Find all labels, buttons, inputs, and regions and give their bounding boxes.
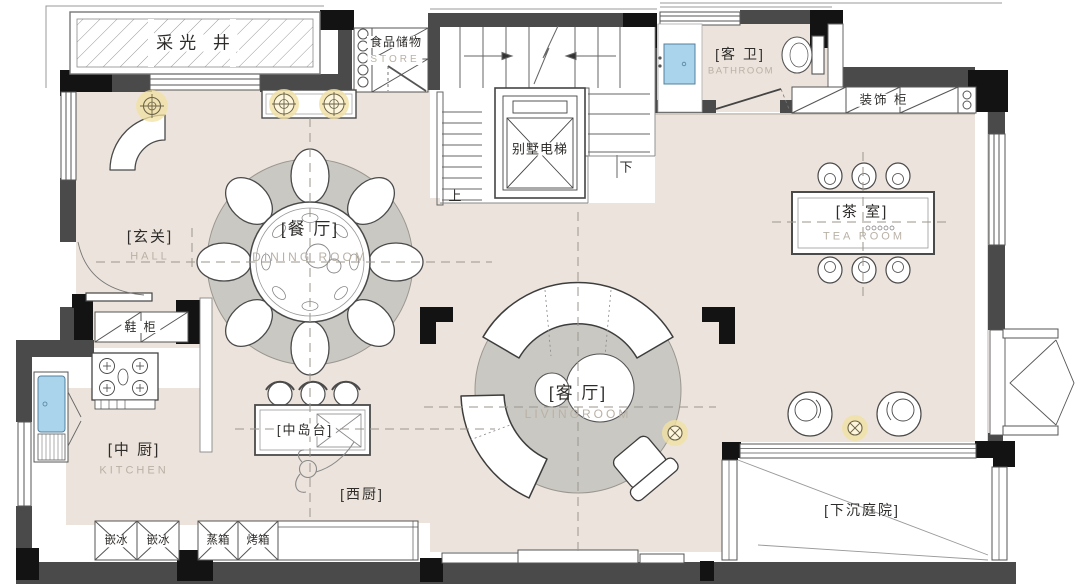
window-left-upper [61, 92, 76, 180]
island-stools [266, 382, 360, 406]
floor-plan-drawing [0, 0, 1080, 586]
label-deco-cabinet: 装饰 柜 [857, 94, 912, 107]
label-courtyard: [下沉庭院] [824, 503, 900, 517]
label-appliance-fridge-1: 嵌冰 [102, 535, 131, 547]
label-living-en: LIVINGROOM [525, 408, 632, 420]
label-pantry-en: STORE [367, 55, 422, 65]
label-dining-en: DINING ROOM [252, 251, 368, 263]
label-tea-room: [茶 室] [836, 205, 889, 220]
light-console-2 [319, 89, 349, 119]
label-appliance-fridge-2: 嵌冰 [144, 535, 173, 547]
label-bathroom-en: BATHROOM [708, 66, 774, 76]
label-island: [中岛台] [274, 424, 336, 437]
label-stairs-up: 上 [448, 190, 463, 203]
round-chair-1 [788, 392, 832, 436]
label-west-kitchen: [西厨] [340, 487, 384, 501]
label-dining: [餐 厅] [281, 221, 339, 238]
entry-door-leaf [86, 293, 152, 301]
label-elevator: 别墅电梯 [509, 143, 571, 156]
label-living: [客 厅] [549, 385, 607, 402]
label-kitchen: [中 厨] [108, 443, 161, 458]
window-top-left [150, 74, 260, 90]
label-kitchen-en: KITCHEN [99, 466, 168, 477]
round-chair-2 [877, 392, 921, 436]
label-hall-en: HALL [130, 252, 170, 263]
label-shoe-cabinet: 鞋 柜 [121, 321, 160, 333]
label-appliance-oven: 烤箱 [244, 535, 273, 547]
window-right [989, 134, 1005, 245]
light-living [662, 420, 688, 446]
staircase [437, 26, 655, 205]
label-pantry: 食品储物 [367, 36, 425, 48]
label-light-well: 采光 井 [153, 35, 239, 52]
light-hall [136, 90, 168, 122]
light-console-1 [269, 89, 299, 119]
toilet [782, 36, 824, 74]
window-kitchen-left [18, 422, 31, 506]
floor-plan: 采光 井 食品储物 STORE 别墅电梯 上 下 [客 卫] BATHROOM … [0, 0, 1080, 586]
window-bathroom-top [660, 12, 740, 25]
light-terrace [842, 415, 868, 441]
label-bathroom: [客 卫] [715, 47, 765, 61]
label-tea-room-en: TEA ROOM [823, 232, 905, 243]
label-hall: [玄关] [127, 230, 173, 245]
label-appliance-steamer: 蒸箱 [204, 535, 233, 547]
bathroom-sink [664, 44, 695, 84]
label-stairs-down: 下 [619, 161, 634, 174]
folding-door-right [990, 329, 1074, 435]
stove [92, 353, 158, 409]
